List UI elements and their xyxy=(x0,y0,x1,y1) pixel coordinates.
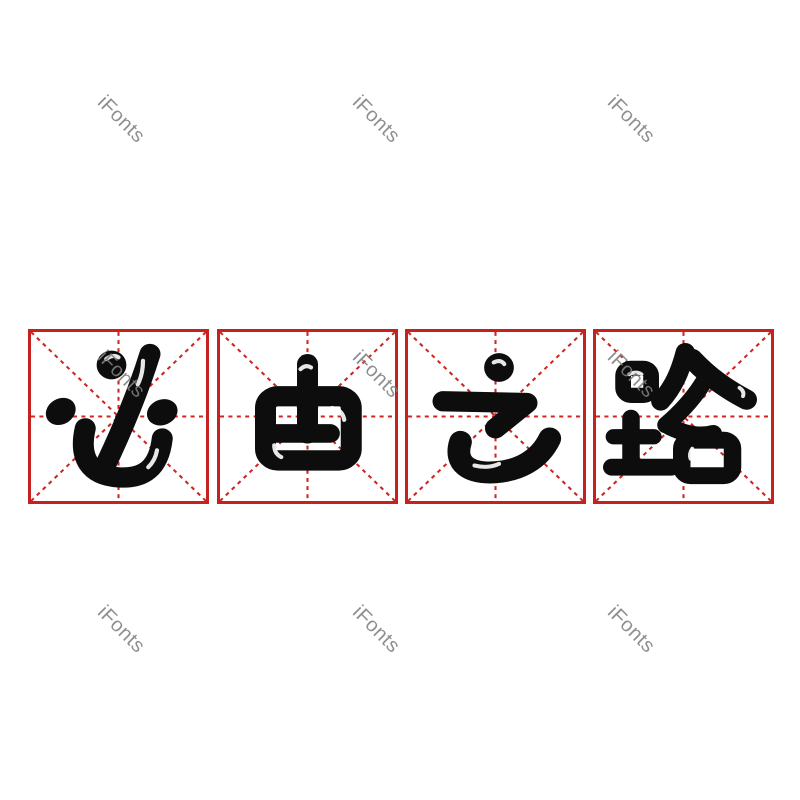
ifonts-watermark: iFonts xyxy=(349,602,404,657)
ifonts-watermark: iFonts xyxy=(94,602,149,657)
character-glyph-zhi: 之 xyxy=(408,332,583,501)
ink-strokes xyxy=(443,401,550,472)
ifonts-watermark: iFonts xyxy=(94,92,149,147)
ink-dots xyxy=(484,353,514,382)
ifonts-watermark: iFonts xyxy=(604,92,659,147)
ifonts-watermark: iFonts xyxy=(604,602,659,657)
grid-cell-3: 之 之 xyxy=(405,329,586,504)
ifonts-watermark: iFonts xyxy=(349,92,404,147)
font-preview-canvas: 必 必 xyxy=(0,0,800,800)
